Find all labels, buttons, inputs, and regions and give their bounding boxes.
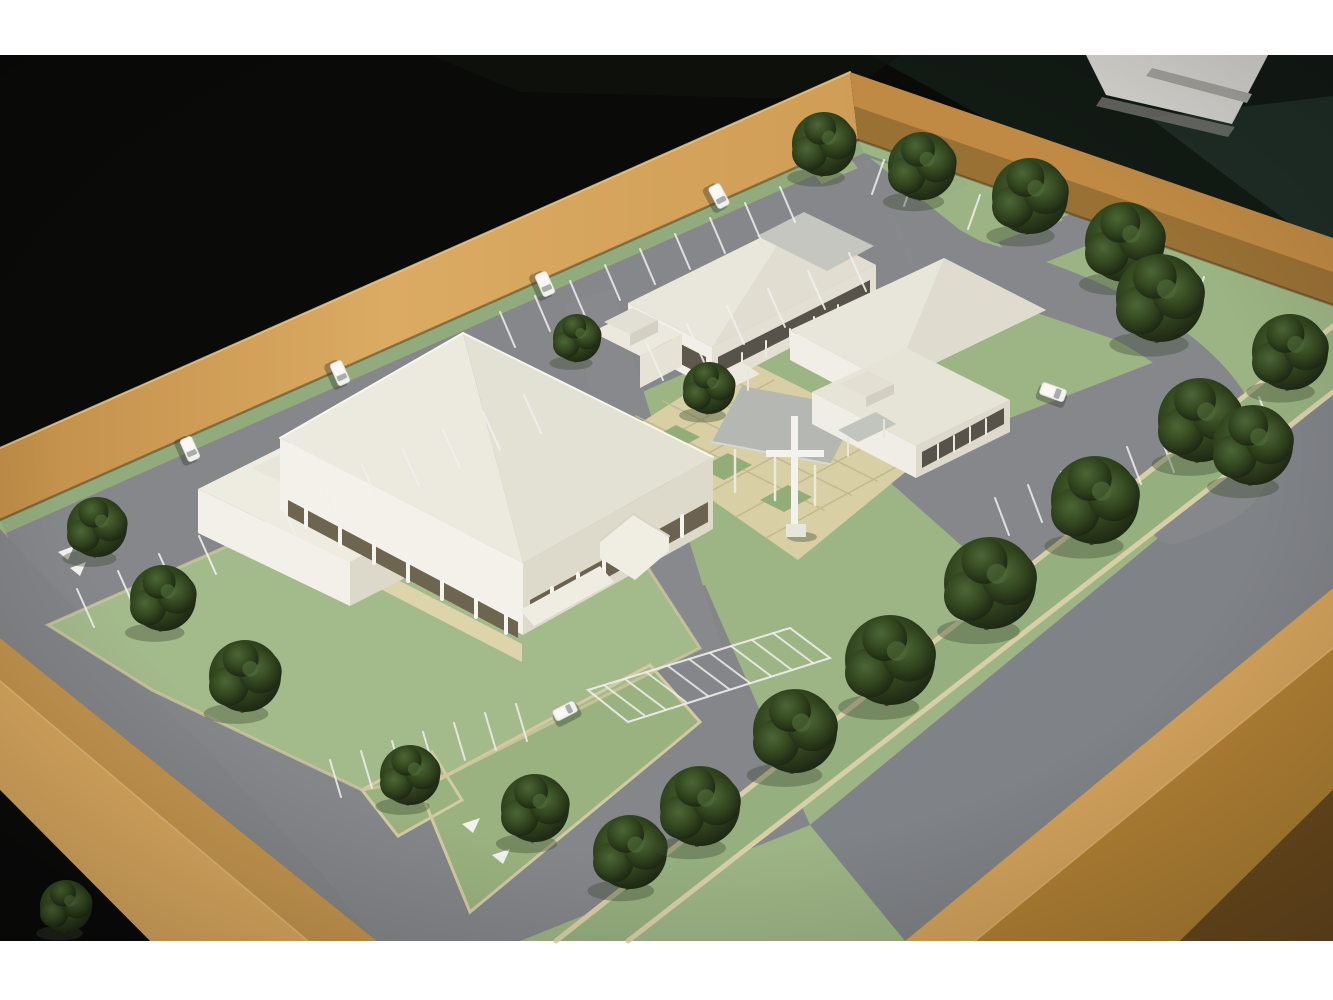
screenshot-root bbox=[0, 0, 1333, 1000]
photo-layers bbox=[0, 55, 1333, 941]
photo-vignette bbox=[0, 55, 1333, 941]
site-model-photo bbox=[0, 0, 1333, 1000]
